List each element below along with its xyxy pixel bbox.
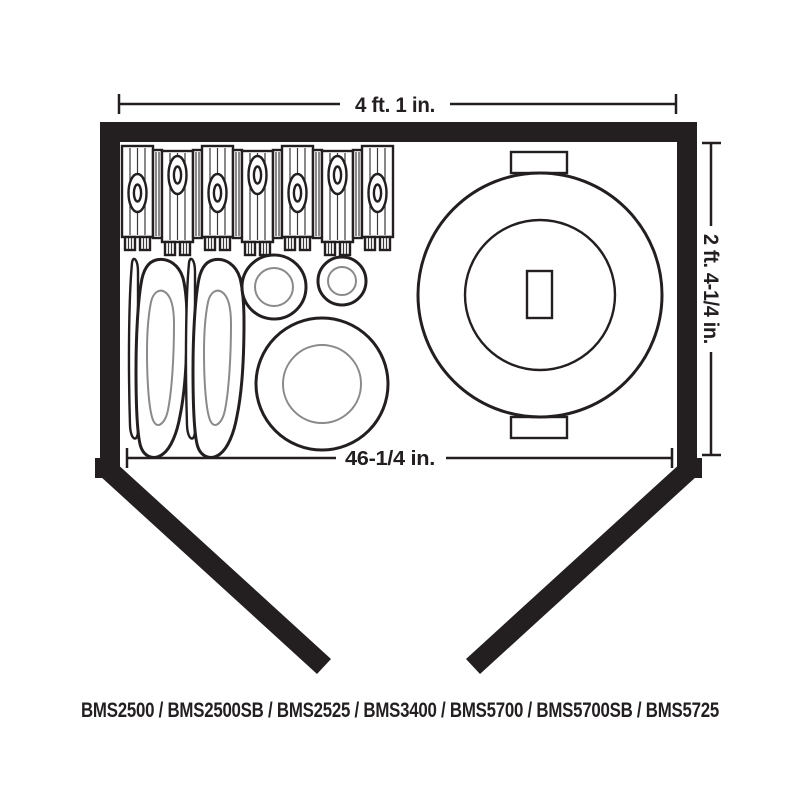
firewood-stack-icon xyxy=(122,146,393,255)
trash-can-handle-top xyxy=(511,152,567,173)
width-dimension: 4 ft. 1 in. xyxy=(119,94,676,117)
wall-left xyxy=(100,122,120,473)
trash-can-lid-handle xyxy=(527,271,552,318)
log-slat xyxy=(322,151,353,255)
log-slat xyxy=(362,146,393,250)
depth-dimension-label: 2 ft. 4-1/4 in. xyxy=(699,234,722,344)
planter-outline xyxy=(242,255,306,319)
log-slat xyxy=(162,151,193,255)
wall-back xyxy=(100,122,697,142)
log-slat xyxy=(153,150,162,238)
right-door-open xyxy=(466,461,697,674)
model-list: BMS2500 / BMS2500SB / BMS2525 / BMS3400 … xyxy=(81,699,719,722)
log-slat xyxy=(353,150,362,238)
storage-bag xyxy=(129,259,187,458)
log-slat xyxy=(273,150,282,238)
depth-dimension: 2 ft. 4-1/4 in. xyxy=(699,143,722,455)
log-slat xyxy=(313,150,322,238)
opening-dimension-label: 46-1/4 in. xyxy=(345,448,435,470)
log-slat xyxy=(233,150,242,238)
planter-outline xyxy=(256,318,388,450)
width-dimension-label: 4 ft. 1 in. xyxy=(355,94,435,117)
trash-can-icon xyxy=(418,152,662,438)
storage-bag xyxy=(186,259,244,458)
wall-right xyxy=(677,122,697,473)
shed-dimension-diagram-page: 4 ft. 1 in. 2 ft. 4-1/4 in. xyxy=(0,0,800,800)
shed-top-view-diagram: 4 ft. 1 in. 2 ft. 4-1/4 in. xyxy=(0,0,800,800)
log-slat xyxy=(202,146,233,250)
log-slat xyxy=(122,146,153,250)
storage-bags-icon xyxy=(129,259,244,458)
round-planters-icon xyxy=(242,255,388,450)
log-slat xyxy=(242,151,273,255)
log-slat xyxy=(193,150,202,238)
log-slat xyxy=(282,146,313,250)
trash-can-handle-bottom xyxy=(511,417,567,438)
left-door-open xyxy=(100,461,331,674)
planter-outline xyxy=(318,257,366,305)
